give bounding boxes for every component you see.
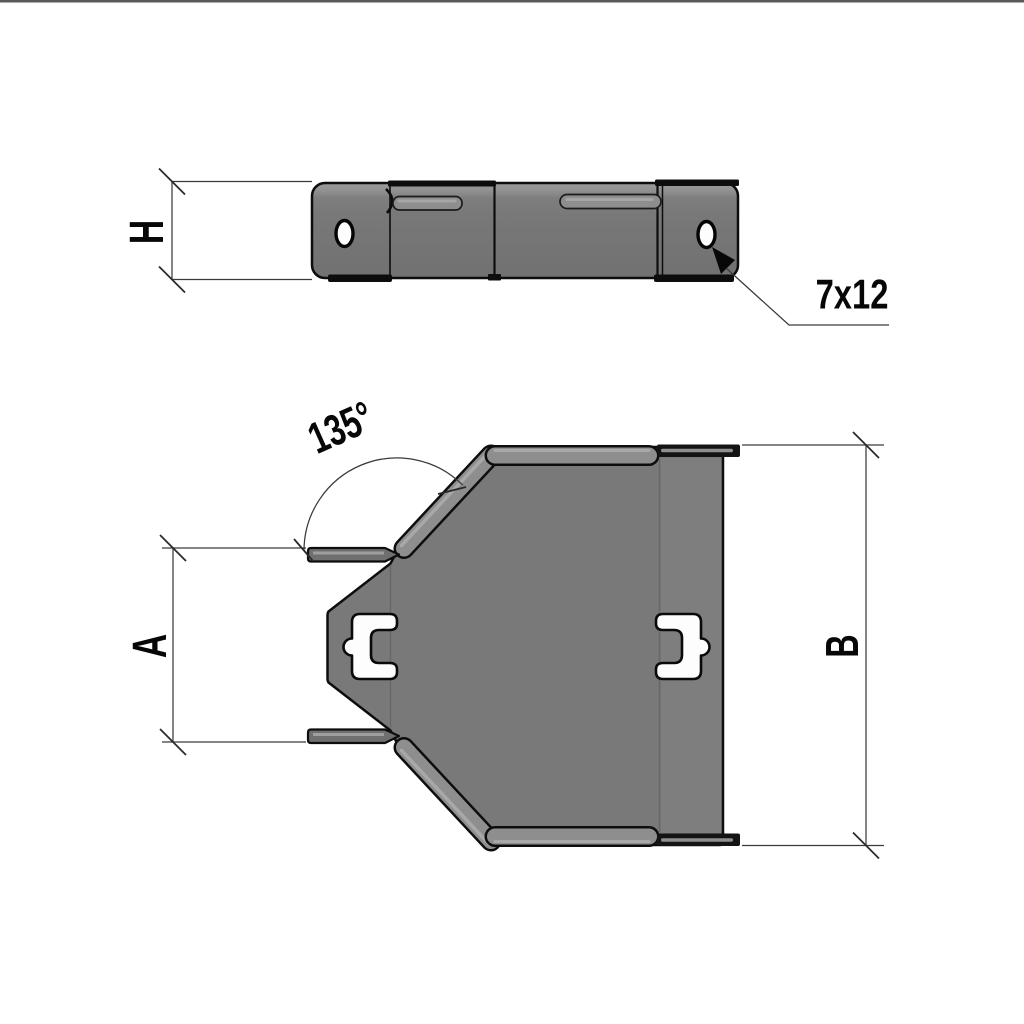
top-edge-flange — [388, 181, 496, 187]
bottom-edge-tick — [488, 274, 501, 281]
slot-size-callout: 7x12 — [816, 271, 889, 318]
angle-label: 135° — [301, 392, 381, 464]
opening-width-label: A — [122, 634, 176, 658]
side-wall-flange-bottom — [495, 837, 649, 842]
flange-stub-top — [308, 548, 399, 562]
side-wall-flange-top — [495, 451, 649, 456]
side-view-body — [312, 183, 738, 278]
height-dimension-label: H — [119, 220, 173, 244]
bottom-return-flange — [654, 275, 734, 283]
rib-emboss-right — [560, 195, 661, 209]
overall-width-label: B — [818, 634, 869, 657]
dimension-A: A — [122, 535, 306, 755]
bottom-return-flange — [328, 275, 392, 283]
flange-stub-bottom — [308, 730, 399, 744]
technical-drawing: H 7x12 — [0, 0, 1024, 1024]
rib-emboss-left — [393, 197, 462, 211]
oval-slot-left — [336, 221, 353, 247]
side-view — [312, 180, 739, 283]
oval-slot-right — [698, 222, 715, 248]
dimension-H: H — [119, 169, 312, 293]
page-top-border — [0, 0, 1024, 3]
connector-tab-top — [657, 445, 740, 458]
plan-view — [308, 445, 740, 847]
dimension-B: B — [742, 432, 884, 859]
drawing-sheet: H 7x12 — [0, 0, 1024, 1024]
connector-tab-bottom — [657, 834, 740, 847]
top-edge-flange — [655, 180, 739, 187]
